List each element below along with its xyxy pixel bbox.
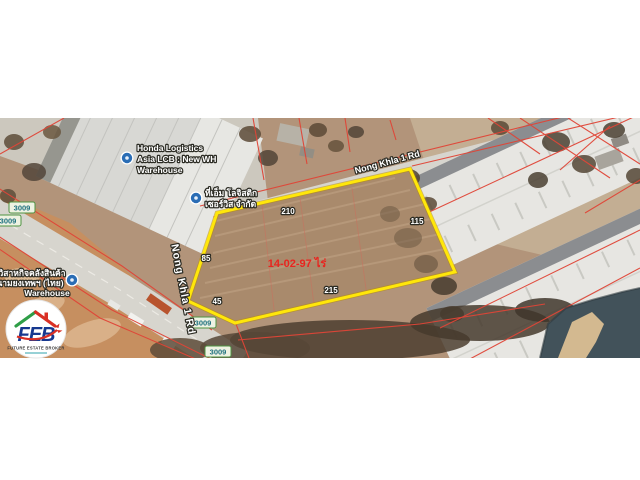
listing-image: { "map": { "plot": { "area_label": "14-0… [0, 0, 640, 480]
measurement-bottom-left: 45 [213, 297, 222, 306]
svg-text:Asia LCB : New WH: Asia LCB : New WH [137, 154, 216, 164]
svg-text:3009: 3009 [210, 348, 227, 357]
measurement-left: 85 [202, 254, 211, 263]
satellite-map: 3009 3009 3009 3009 Honda Logistics Asia [0, 118, 640, 358]
route-badge-3009: 3009 [9, 202, 35, 213]
svg-text:Warehouse: Warehouse [24, 288, 70, 298]
svg-text:ที่เอ็ม โลจิสติก: ที่เอ็ม โลจิสติก [205, 186, 257, 198]
place-marker-namyong [66, 274, 79, 287]
route-badge-3009: 3009 [0, 215, 21, 226]
route-badge-3009: 3009 [205, 346, 231, 357]
svg-text:3009: 3009 [14, 204, 31, 213]
logo-divider [25, 353, 47, 354]
place-marker-tm-logistic [190, 192, 203, 205]
measurement-bottom: 215 [324, 286, 338, 295]
svg-text:3009: 3009 [0, 217, 16, 226]
svg-text:Warehouse: Warehouse [137, 165, 183, 175]
svg-text:เซอร์วิส จำกัด: เซอร์วิส จำกัด [205, 199, 257, 209]
satellite-map-canvas: 3009 3009 3009 3009 Honda Logistics Asia [0, 118, 640, 358]
svg-text:Honda Logistics: Honda Logistics [137, 143, 203, 153]
svg-text:วิสาหกิจคลังสินค้า: วิสาหกิจคลังสินค้า [0, 268, 66, 278]
svg-text:นามยงเทพฯ (ไทย): นามยงเทพฯ (ไทย) [0, 278, 64, 288]
measurement-right: 115 [411, 217, 424, 226]
tm-logistic-label: ที่เอ็ม โลจิสติก เซอร์วิส จำกัด [205, 186, 257, 209]
land-plot-area-label: 14-02-97 ไร่ [268, 256, 327, 270]
place-marker-honda [121, 152, 134, 165]
feb-logo: FEB FUTURE ESTATE BROKER [5, 299, 67, 359]
feb-tagline: FUTURE ESTATE BROKER [7, 346, 64, 351]
measurement-top: 210 [281, 207, 295, 216]
